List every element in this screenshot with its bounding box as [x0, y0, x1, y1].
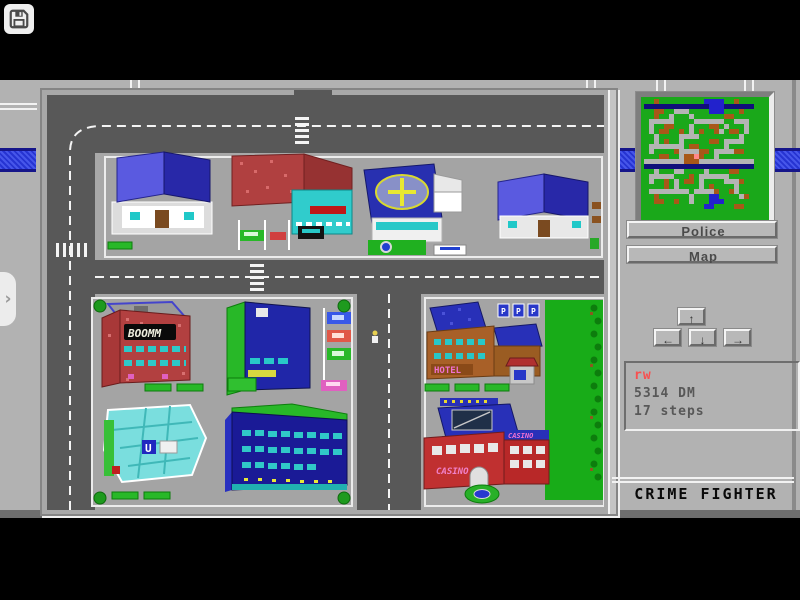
city-map-view[interactable]: BOOMM	[40, 88, 618, 516]
player-money: 5314 DM	[634, 386, 798, 404]
top-black-bar	[0, 0, 800, 80]
nav-down-button[interactable]: ↓	[689, 329, 716, 346]
building-supermarket[interactable]: U	[104, 405, 206, 482]
supermarket-sign: U	[145, 442, 152, 455]
cinema-sign: BOOMM	[127, 327, 161, 340]
parked-car-red	[327, 330, 351, 342]
building-bank[interactable]	[112, 152, 212, 234]
game-title: CRIME FIGHTER	[618, 485, 794, 503]
trash-can	[590, 238, 599, 249]
hotel-parking-signs: P P P	[498, 304, 539, 317]
parked-car-green	[327, 348, 351, 360]
map-button[interactable]: Map	[627, 246, 777, 263]
minimap-grid	[644, 99, 754, 209]
decor-line	[612, 481, 794, 483]
tree	[338, 300, 350, 312]
building-cinema[interactable]: BOOMM	[102, 302, 190, 387]
building-office[interactable]	[227, 302, 310, 395]
bench-brown	[592, 216, 601, 223]
tree	[94, 300, 106, 312]
svg-text:P: P	[516, 307, 521, 316]
svg-text:P: P	[501, 307, 506, 316]
decor-line	[0, 103, 37, 105]
blue-band	[0, 148, 36, 172]
building-nightclub[interactable]	[225, 404, 347, 492]
floppy-disk-icon	[8, 8, 30, 30]
nav-right-button[interactable]: →	[724, 329, 751, 346]
bench-green	[112, 492, 138, 499]
minimap[interactable]	[636, 92, 774, 228]
arrow-up-icon: ↑	[689, 312, 695, 326]
status-box: rw 5314 DM 17 steps	[624, 361, 800, 431]
bench-green	[108, 242, 132, 249]
casino-annex-sign: CASINO	[508, 432, 533, 440]
fountain	[465, 485, 499, 503]
nav-up-button[interactable]: ↑	[678, 308, 705, 325]
casino-wall-sign: CASINO	[436, 467, 469, 477]
save-button[interactable]	[4, 4, 34, 34]
parked-car-red	[270, 232, 286, 240]
player-steps: 17 steps	[634, 404, 798, 422]
hotel-sign: HOTEL	[434, 366, 462, 376]
hedge	[425, 384, 449, 391]
hedge	[455, 384, 479, 391]
parked-car-green	[240, 230, 264, 241]
drawer-handle[interactable]: ›	[0, 272, 16, 326]
bench-green	[144, 492, 170, 499]
building-bank-2[interactable]	[498, 174, 588, 238]
police-button[interactable]: Police	[627, 221, 777, 238]
tree	[338, 492, 350, 504]
kiosk[interactable]	[506, 358, 538, 384]
player-initials: rw	[634, 368, 798, 386]
decor-line	[0, 108, 37, 110]
pedestrian	[372, 331, 378, 344]
parked-car-pink	[321, 380, 347, 391]
arrow-down-icon: ↓	[700, 333, 706, 347]
bench-green	[177, 384, 203, 391]
svg-text:P: P	[531, 307, 536, 316]
arrow-right-icon: →	[732, 333, 744, 347]
parked-car-dark	[298, 226, 324, 239]
park[interactable]	[545, 300, 603, 500]
bench-green	[145, 384, 171, 391]
bottom-black-bar	[0, 518, 800, 600]
arrow-left-icon: ←	[662, 333, 674, 347]
nav-left-button[interactable]: ←	[654, 329, 681, 346]
screen-edge	[792, 80, 796, 518]
hedge	[485, 384, 509, 391]
parked-car-blue	[327, 312, 351, 324]
game-screen: BOOMM	[0, 80, 800, 518]
police-car	[434, 245, 466, 255]
bench-brown	[592, 202, 601, 209]
chevron-right-icon: ›	[4, 289, 11, 309]
decor-line	[612, 477, 794, 479]
tree	[94, 492, 106, 504]
